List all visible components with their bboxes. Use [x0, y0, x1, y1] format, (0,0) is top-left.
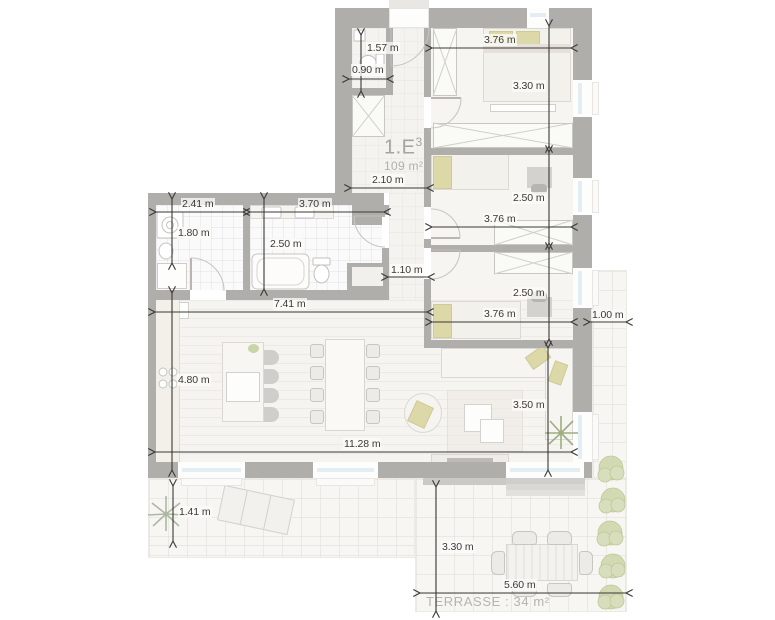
terrace-steps [506, 490, 585, 496]
dimension-label: 3.30 m [441, 541, 475, 553]
window-sill [592, 82, 599, 115]
wall [573, 215, 592, 268]
window [573, 178, 592, 215]
wardrobe [433, 28, 457, 96]
dining-chair [310, 366, 324, 380]
wardrobe [494, 252, 573, 274]
window [527, 8, 549, 28]
dimension-label: 1.41 m [178, 506, 212, 518]
dimension-label: 3.30 m [512, 80, 546, 92]
bed-pillow [433, 304, 452, 338]
island-fridge [226, 372, 260, 402]
window-glass [578, 83, 582, 114]
terrace-area-label: TERRASSE : 34 m² [426, 594, 550, 609]
window-glass [578, 181, 582, 212]
wall [424, 340, 592, 348]
outdoor-chair [512, 531, 537, 545]
wall [431, 148, 573, 155]
entrance-door-opening [389, 8, 429, 28]
wall [335, 8, 352, 193]
terrace-door-glass [578, 415, 582, 459]
dimension-label: 2.50 m [512, 287, 546, 299]
wall-duct [352, 205, 382, 225]
dining-chair [366, 388, 380, 402]
island-plant [248, 344, 259, 353]
wardrobe [433, 123, 573, 148]
unit-area: 109 m² [384, 159, 423, 173]
wall [382, 205, 389, 215]
bed-pillow [433, 156, 452, 189]
window-sill [181, 478, 242, 486]
window-glass [317, 468, 374, 472]
outdoor-chair [579, 551, 593, 575]
wall [429, 8, 527, 28]
wall [378, 462, 506, 478]
dimension-label: 3.70 m [298, 198, 332, 210]
dimension-label: 4.80 m [177, 374, 211, 386]
dimension-label: 7.41 m [273, 298, 307, 310]
dining-chair [310, 344, 324, 358]
unit-name-text: 1.E [384, 137, 416, 159]
outdoor-chair [491, 551, 505, 575]
window-glass [530, 13, 546, 17]
terrace-platform [423, 478, 506, 485]
dining-chair [366, 366, 380, 380]
wall [573, 308, 592, 412]
dimension-label: 0.90 m [351, 64, 385, 76]
outdoor-table [506, 544, 578, 581]
wall [584, 462, 592, 478]
wall [573, 117, 592, 178]
wall [424, 28, 431, 97]
floor-plan: 1.57 m0.90 m3.76 m3.30 m2.10 m2.50 m3.76… [0, 0, 775, 620]
wall [148, 462, 178, 478]
dimension-label: 1.00 m [591, 309, 625, 321]
wall [424, 128, 431, 207]
dimension-label: 3.76 m [483, 34, 517, 46]
shower-tray [157, 263, 187, 289]
hallway-cabinet [352, 95, 385, 137]
dimension-label: 11.28 m [343, 438, 381, 450]
unit-name-superscript: 3 [416, 135, 423, 149]
window-sill [592, 180, 599, 213]
window-sill [592, 270, 599, 306]
outdoor-chair [547, 583, 572, 597]
bed-bench [490, 104, 556, 112]
dimension-label: 1.10 m [390, 264, 424, 276]
window [573, 268, 592, 308]
dimension-label: 3.76 m [483, 308, 517, 320]
bar-stool [264, 407, 279, 422]
sliding-door-glass [510, 468, 580, 472]
dining-chair [366, 410, 380, 424]
wall [431, 245, 573, 252]
wall [424, 279, 431, 340]
window-glass [578, 271, 582, 305]
wall [386, 28, 393, 95]
window-glass [182, 468, 241, 472]
wall [148, 193, 156, 478]
dimension-label: 1.57 m [366, 42, 400, 54]
wall [573, 8, 592, 80]
dimension-label: 2.41 m [181, 198, 215, 210]
wall [424, 239, 431, 248]
bar-stool [264, 388, 279, 403]
wall [245, 462, 313, 478]
duct-inset [352, 267, 383, 286]
bar-stool [264, 369, 279, 384]
dining-chair [310, 388, 324, 402]
lounge-chair-backrest [240, 491, 248, 524]
dimension-label: 3.76 m [483, 213, 517, 225]
dining-chair [366, 344, 380, 358]
unit-label: 1.E3 109 m² [384, 132, 423, 173]
dining-chair [310, 410, 324, 424]
terrace-door [573, 412, 592, 462]
dimension-label: 3.50 m [512, 399, 546, 411]
window-sill [592, 414, 599, 460]
outdoor-chair [547, 531, 572, 545]
dimension-label: 2.10 m [371, 174, 405, 186]
dimension-label: 5.60 m [503, 579, 537, 591]
wall [226, 290, 389, 300]
dimension-label: 1.80 m [177, 227, 211, 239]
lounge-chair-seat-line [263, 496, 271, 529]
entrance-walkway [389, 0, 429, 8]
terrace-divider-line [148, 545, 415, 546]
coffee-table [480, 419, 504, 443]
dimension-label: 2.50 m [269, 238, 303, 250]
bar-stool [264, 350, 279, 365]
wall [243, 205, 250, 290]
unit-name: 1.E3 [384, 132, 423, 159]
wall [148, 290, 190, 300]
dining-table [325, 339, 365, 431]
dimension-label: 2.50 m [512, 192, 546, 204]
window-sill [316, 478, 375, 486]
window [573, 80, 592, 117]
floor-hallway-lower [389, 193, 424, 300]
